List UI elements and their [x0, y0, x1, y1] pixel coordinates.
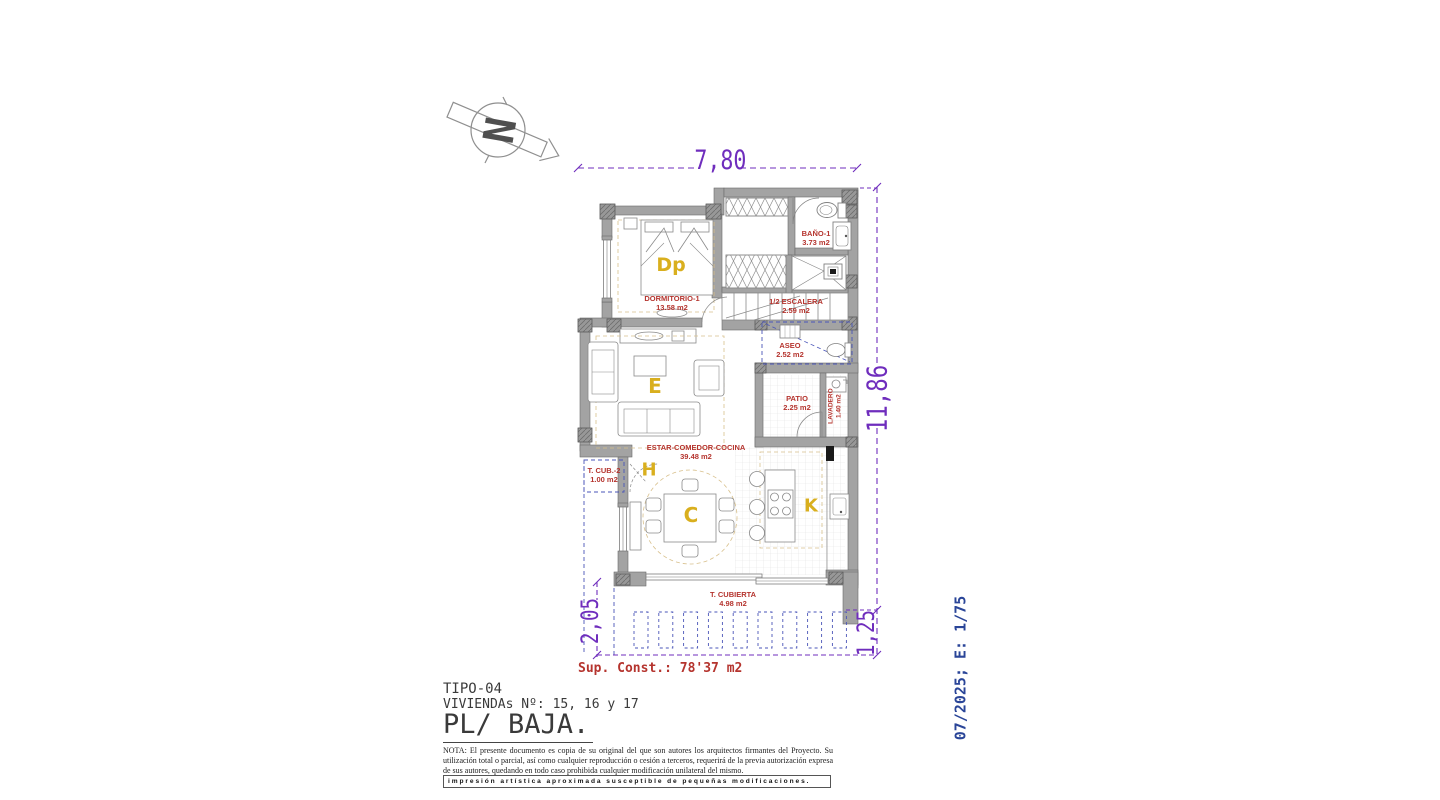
closet-under-stairs — [726, 255, 786, 288]
bath-door-arc — [793, 198, 819, 224]
closets — [726, 198, 788, 288]
label-dormitorio: DORMITORIO-113.58 m2 — [622, 294, 722, 313]
shower-icon — [792, 256, 846, 290]
north-arrow: N — [445, 97, 563, 167]
label-tcubierta: T. CUBIERTA4.98 m2 — [683, 590, 783, 609]
sofa-large-icon — [618, 402, 700, 436]
stool-icon — [750, 500, 765, 515]
label-tcub2: T. CUB.-21.00 m2 — [579, 466, 629, 485]
north-letter: N — [472, 113, 525, 146]
stool-icon — [750, 526, 765, 541]
disclaimer-box: impresión artística aproximada susceptib… — [443, 775, 831, 788]
hall-cabinet-icon — [630, 502, 641, 550]
dim-top: 7,80 — [694, 145, 745, 176]
letter-comedor: C — [684, 503, 699, 527]
note-rule — [443, 742, 593, 743]
nightstand-icon — [624, 218, 637, 229]
plan-drawing: N — [0, 0, 1440, 800]
stove-icon — [768, 490, 793, 518]
pergola-slats — [634, 612, 846, 648]
label-aseo: ASEO2.52 m2 — [760, 341, 820, 360]
floor-plan-sheet: N — [0, 0, 1440, 800]
label-escalera: 1/2 ESCALERA2.59 m2 — [756, 297, 836, 316]
label-lavadero: LAVADERO1.40 m2 — [820, 377, 852, 435]
closet-hall — [726, 198, 788, 216]
dim-bottom-right: 1,25 — [826, 593, 906, 673]
letter-hall: H — [641, 460, 656, 481]
dim-bottom-left: 2,05 — [550, 581, 630, 661]
armchair-icon — [694, 360, 724, 396]
stool-icon — [750, 472, 765, 487]
label-bano: BAÑO-13.73 m2 — [786, 229, 846, 248]
letter-cocina: K — [804, 496, 818, 517]
title-planta: PL/ BAJA. — [443, 709, 589, 740]
label-patio: PATIO2.25 m2 — [767, 394, 827, 413]
kitchen-sink-icon — [830, 494, 849, 519]
letter-estar: E — [648, 374, 662, 398]
appliance-icon — [826, 446, 834, 461]
sup-const: Sup. Const.: 78'37 m2 — [578, 661, 742, 676]
sofa-small-icon — [588, 342, 618, 402]
toilet-icon — [817, 203, 846, 219]
letter-dormitorio: Dp — [656, 254, 685, 276]
side-note: 07/2025; E: 1/75 — [938, 585, 982, 750]
coffee-table-icon — [634, 356, 666, 376]
legal-note: NOTA: El presente documento es copia de … — [443, 746, 833, 777]
title-tipo: TIPO-04 — [443, 681, 502, 697]
